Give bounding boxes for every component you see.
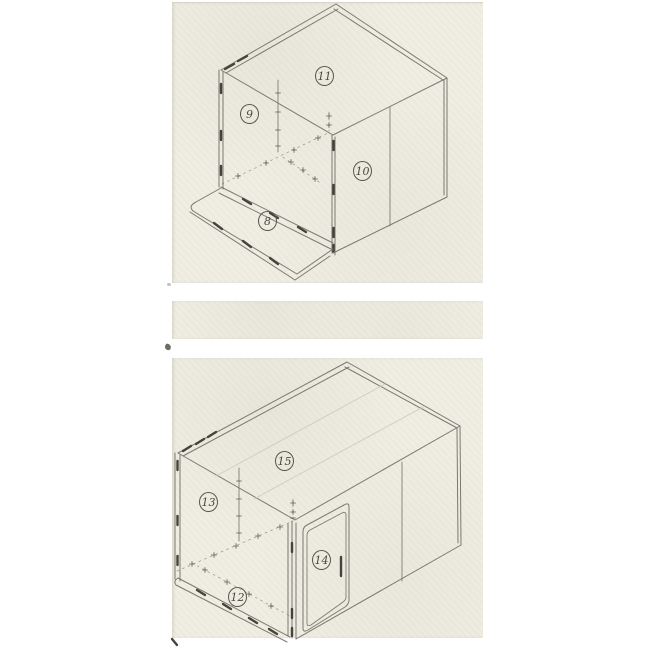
page-background: 8 9 10 11 12 13 14 15: [0, 0, 650, 650]
floor-panel-8: [190, 188, 333, 280]
part-label-14: 14: [312, 550, 331, 570]
ceiling-panel-15: [178, 362, 460, 520]
part-label-10: 10: [353, 161, 372, 181]
assembly-marks: [172, 499, 296, 645]
part-label-9: 9: [240, 104, 259, 124]
part-label-15: 15: [275, 451, 294, 471]
part-label-13: 13: [199, 492, 218, 512]
right-wall-panel-10: [333, 78, 447, 253]
left-wall-panel-13: [175, 453, 242, 581]
assembly-marks: [222, 112, 332, 184]
scan-speckle-2: [164, 343, 172, 351]
scan-speckle-1: [167, 283, 171, 286]
part-label-8: 8: [258, 211, 277, 231]
part-label-11: 11: [315, 66, 334, 86]
figure-1-linework: [172, 0, 483, 282]
corner-post: [332, 135, 335, 255]
part-label-12: 12: [228, 587, 247, 607]
front-wall-panel: [296, 426, 461, 639]
door-frame-post: [288, 521, 296, 639]
scan-area-middle: [172, 301, 483, 339]
